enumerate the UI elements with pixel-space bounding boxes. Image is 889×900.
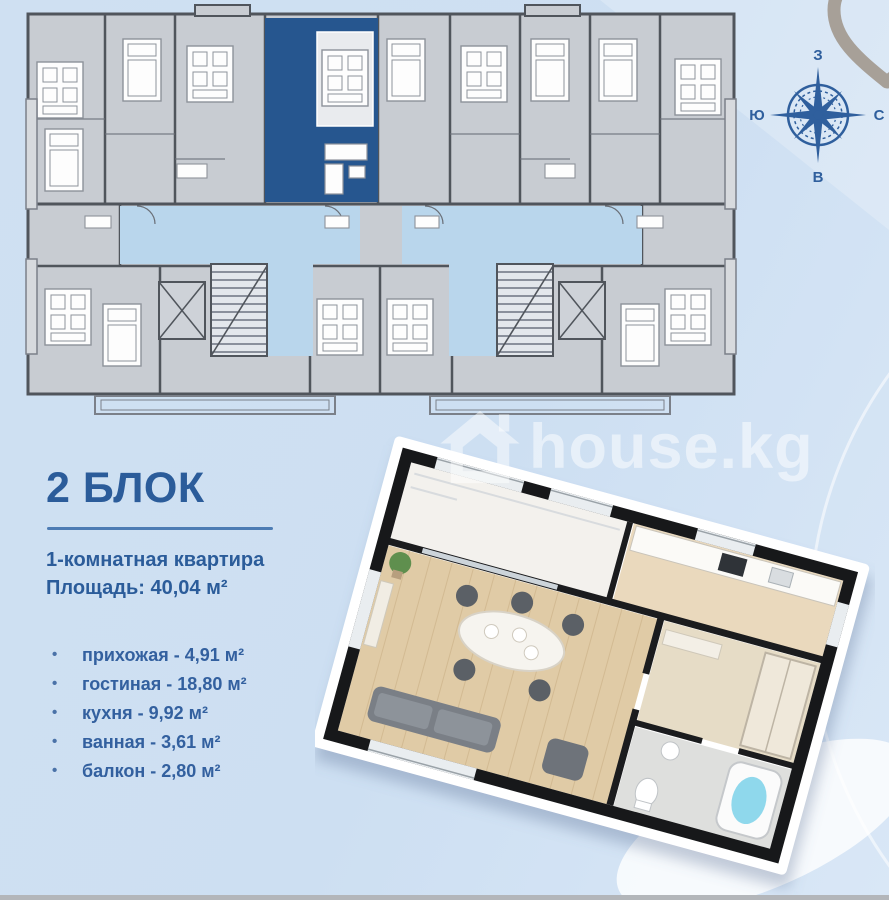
staircase-right <box>497 264 553 356</box>
room-label: кухня - 9,92 м² <box>82 703 208 724</box>
staircase-left <box>211 264 267 356</box>
room-label: балкон - 2,80 м² <box>82 761 221 782</box>
room-item: • ванная - 3,61 м² <box>52 732 247 761</box>
apartment-3d-render <box>315 415 875 900</box>
room-list: • прихожая - 4,91 м² • гостиная - 18,80 … <box>52 645 247 790</box>
bullet-dot: • <box>52 761 82 779</box>
building-floor-plan <box>25 4 737 419</box>
apartment-summary: 1-комнатная квартира Площадь: 40,04 м² <box>46 546 264 602</box>
room-item: • балкон - 2,80 м² <box>52 761 247 790</box>
bottom-edge-strip <box>0 895 889 900</box>
elevator-right <box>559 282 605 339</box>
bullet-dot: • <box>52 645 82 663</box>
area-line: Площадь: 40,04 м² <box>46 574 264 602</box>
bullet-dot: • <box>52 703 82 721</box>
block-title: 2 БЛОК <box>46 464 205 513</box>
apartment-type: 1-комнатная квартира <box>46 546 264 574</box>
compass-letter-left: Ю <box>749 107 764 124</box>
title-divider <box>47 527 273 530</box>
compass-letter-right: С <box>874 107 885 124</box>
bullet-dot: • <box>52 732 82 750</box>
elevator-left <box>159 282 205 339</box>
highlighted-unit <box>265 18 378 202</box>
heart-icon[interactable] <box>812 0 889 104</box>
bullet-dot: • <box>52 674 82 692</box>
room-item: • прихожая - 4,91 м² <box>52 645 247 674</box>
room-item: • гостиная - 18,80 м² <box>52 674 247 703</box>
room-item: • кухня - 9,92 м² <box>52 703 247 732</box>
compass-letter-bottom: В <box>813 169 824 186</box>
listing-floorplan-slide: З Ю С В 2 БЛОК 1-комнатная квартира Площ… <box>0 0 889 900</box>
room-label: ванная - 3,61 м² <box>82 732 220 753</box>
room-label: прихожая - 4,91 м² <box>82 645 244 666</box>
room-label: гостиная - 18,80 м² <box>82 674 247 695</box>
